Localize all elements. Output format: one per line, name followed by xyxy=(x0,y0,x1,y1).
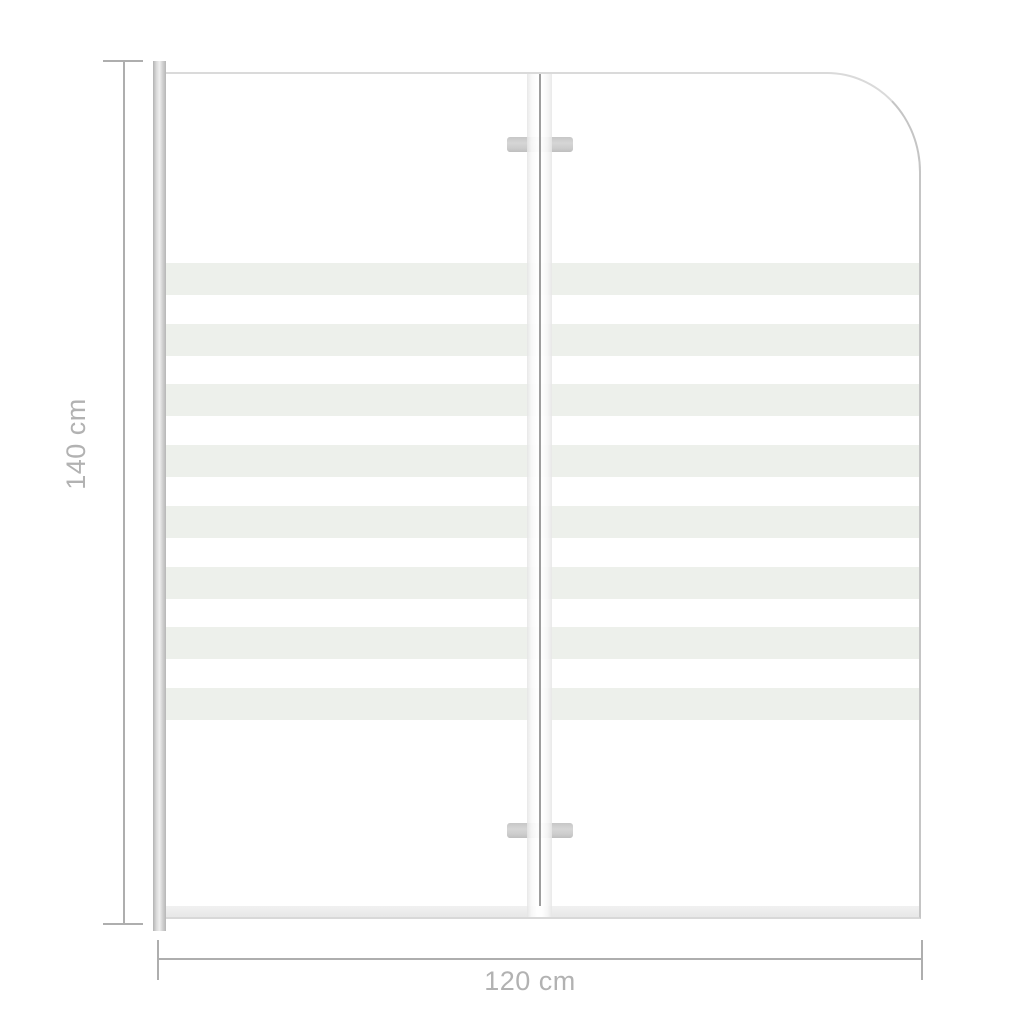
width-dimension-label: 120 cm xyxy=(460,964,600,998)
width-dimension-right-tick xyxy=(921,940,923,980)
height-dimension-line xyxy=(123,60,125,925)
glass-panels xyxy=(166,72,921,919)
width-dimension-line xyxy=(157,958,923,960)
width-dimension-left-tick xyxy=(157,940,159,980)
height-dimension-bottom-tick xyxy=(103,923,143,925)
height-dimension-label: 140 cm xyxy=(59,374,93,514)
diagram-canvas: 140 cm 120 cm xyxy=(0,0,1024,1024)
fold-hinge-line xyxy=(539,74,541,906)
wall-mount-profile xyxy=(153,61,166,931)
